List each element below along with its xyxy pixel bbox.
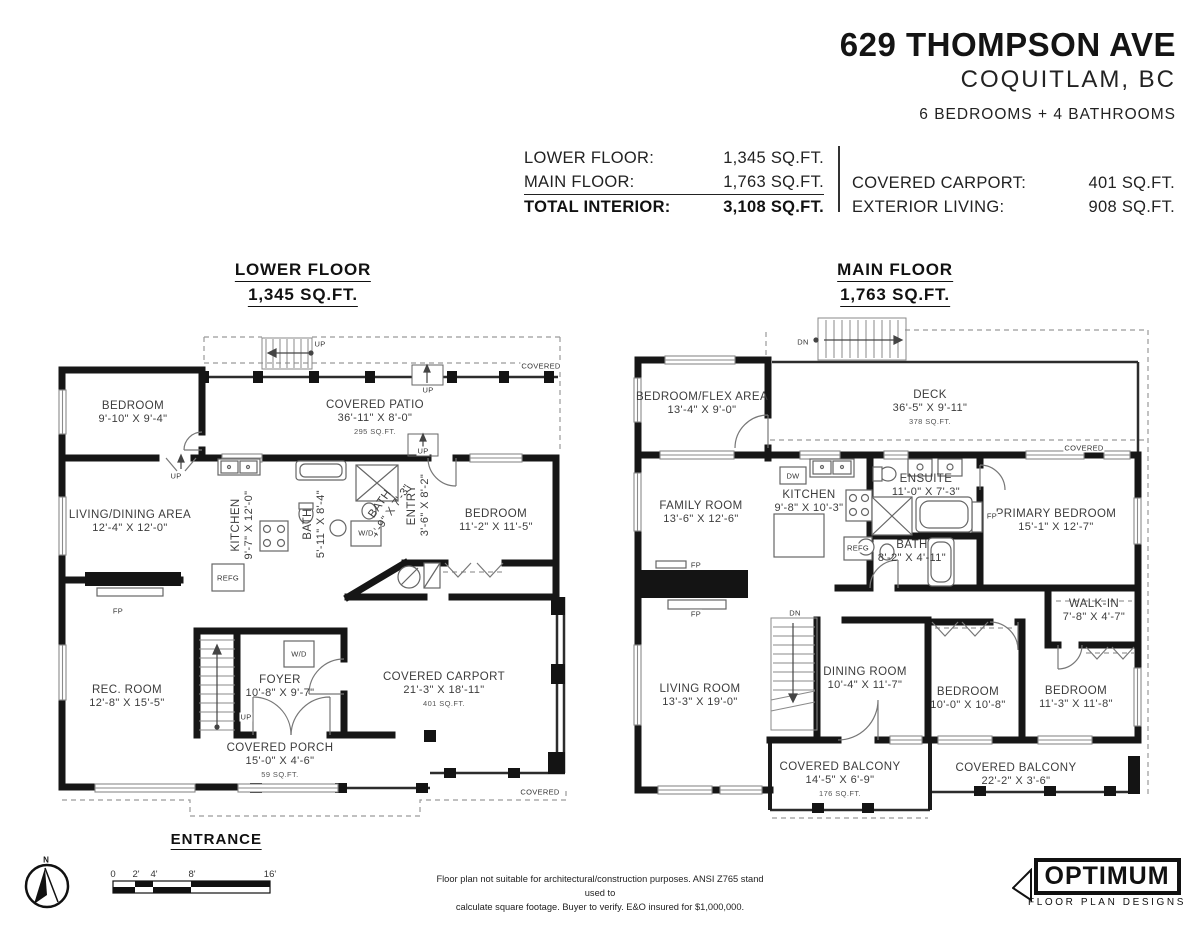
- room-label-primary-bedroom: PRIMARY BEDROOM 15'-1" X 12'-7": [996, 507, 1117, 535]
- room-label-lower-bath-1: BATH 5'-11" X 8'-4": [301, 490, 329, 558]
- area-row-carport: COVERED CARPORT: 401 SQ.FT.: [852, 171, 1175, 195]
- logo-name: OPTIMUM: [1045, 862, 1170, 890]
- dn-label: DN: [788, 609, 801, 618]
- entrance-block: ENTRANCE: [216, 831, 307, 850]
- room-label-deck: DECK 36'-5" X 9'-11" 378 SQ.FT.: [893, 388, 968, 427]
- room-dims: 9'-8" X 10'-3": [775, 502, 844, 516]
- room-dims: 12'-8" X 15'-5": [89, 697, 165, 711]
- room-area: 176 SQ.FT.: [779, 789, 900, 798]
- room-name: DINING ROOM: [823, 665, 907, 679]
- room-dims: 3'-6" X 8'-2": [419, 474, 433, 536]
- up-label: UP: [169, 472, 182, 481]
- room-name: COVERED BALCONY: [779, 760, 900, 774]
- room-area: 295 SQ.FT.: [326, 427, 424, 436]
- room-label-family-room: FAMILY ROOM 13'-6" X 12'-6": [659, 499, 742, 527]
- washer-dryer-label: W/D: [290, 650, 307, 659]
- room-label-covered-patio: COVERED PATIO 36'-11" X 8'-0" 295 SQ.FT.: [326, 398, 424, 437]
- room-name: LIVING/DINING AREA: [69, 508, 191, 522]
- scale-tick: 8': [188, 869, 195, 880]
- room-label-dining-room: DINING ROOM 10'-4" X 11'-7": [823, 665, 907, 693]
- dishwasher-label: DW: [785, 472, 800, 481]
- area-row-exterior: EXTERIOR LIVING: 908 SQ.FT.: [852, 195, 1175, 219]
- covered-label: COVERED: [519, 788, 560, 797]
- covered-label: COVERED: [1063, 444, 1104, 453]
- up-label: UP: [416, 447, 429, 456]
- room-label-main-bedroom-2: BEDROOM 11'-3" X 11'-8": [1039, 684, 1113, 712]
- lower-floor-sqft: 1,345 SQ.FT.: [248, 285, 358, 307]
- scale-bar: [112, 880, 272, 896]
- room-name: FOYER: [246, 673, 315, 687]
- fireplace-label: FP: [690, 561, 702, 570]
- room-name: WALK-IN: [1063, 597, 1125, 611]
- room-name: LIVING ROOM: [659, 682, 740, 696]
- area-value: 401 SQ.FT.: [1089, 174, 1175, 193]
- room-dims: 5'-11" X 8'-4": [315, 490, 329, 558]
- main-floor-sqft: 1,763 SQ.FT.: [840, 285, 950, 307]
- area-table-right: COVERED CARPORT: 401 SQ.FT. EXTERIOR LIV…: [852, 171, 1175, 219]
- room-dims: 8'-2" X 4'-11": [878, 552, 946, 566]
- room-name: ENTRY: [405, 474, 419, 536]
- logo-pennant-icon: [1012, 868, 1032, 904]
- room-dims: 10'-8" X 9'-7": [246, 687, 315, 701]
- room-dims: 13'-3" X 19'-0": [659, 696, 740, 710]
- room-name: BEDROOM/FLEX AREA: [636, 390, 768, 404]
- room-name: DECK: [893, 388, 968, 402]
- room-area: 378 SQ.FT.: [893, 417, 968, 426]
- scale-tick: 16': [264, 869, 276, 880]
- room-dims: 22'-2" X 3'-6": [955, 775, 1076, 789]
- room-name: KITCHEN: [229, 491, 243, 560]
- room-area: 401 SQ.FT.: [383, 699, 505, 708]
- disclaimer-line-2: calculate square footage. Buyer to verif…: [432, 900, 768, 914]
- area-value: 908 SQ.FT.: [1089, 198, 1175, 217]
- dn-label: DN: [796, 338, 809, 347]
- north-arrow-icon: [22, 860, 72, 910]
- room-name: COVERED PORCH: [227, 741, 334, 755]
- entrance-label: ENTRANCE: [171, 831, 262, 850]
- room-dims: 7'-8" X 4'-7": [1063, 611, 1125, 625]
- fireplace-label: FP: [986, 512, 998, 521]
- up-label: UP: [313, 340, 326, 349]
- room-dims: 36'-11" X 8'-0": [326, 412, 424, 426]
- property-city: COQUITLAM, BC: [840, 66, 1176, 94]
- room-area: 59 SQ.FT.: [227, 770, 334, 779]
- room-label-walk-in: WALK-IN 7'-8" X 4'-7": [1063, 597, 1125, 625]
- area-value: 1,345 SQ.FT.: [723, 149, 824, 168]
- room-label-main-kitchen: KITCHEN 9'-8" X 10'-3": [775, 488, 844, 516]
- room-label-main-bedroom-1: BEDROOM 10'-0" X 10'-8": [930, 685, 1006, 713]
- room-name: BATH: [301, 490, 315, 558]
- disclaimer: Floor plan not suitable for architectura…: [432, 872, 768, 914]
- area-row-total: TOTAL INTERIOR: 3,108 SQ.FT.: [524, 195, 824, 219]
- property-address: 629 THOMPSON AVE: [840, 26, 1176, 64]
- room-dims: 36'-5" X 9'-11": [893, 402, 968, 416]
- room-name: BEDROOM: [930, 685, 1006, 699]
- main-floor-title: MAIN FLOOR 1,763 SQ.FT.: [837, 260, 953, 307]
- area-value: 1,763 SQ.FT.: [723, 173, 824, 192]
- room-dims: 12'-4" X 12'-0": [69, 522, 191, 536]
- area-label: COVERED CARPORT:: [852, 174, 1026, 193]
- room-dims: 13'-4" X 9'-0": [636, 404, 768, 418]
- room-label-covered-balcony-2: COVERED BALCONY 22'-2" X 3'-6": [955, 761, 1076, 789]
- bedroom-bathroom-summary: 6 BEDROOMS + 4 BATHROOMS: [840, 106, 1176, 124]
- area-label: EXTERIOR LIVING:: [852, 198, 1004, 217]
- area-label: LOWER FLOOR:: [524, 149, 654, 168]
- table-divider: [838, 146, 840, 212]
- fireplace-label: FP: [112, 607, 124, 616]
- room-label-ensuite: ENSUITE 11'-0" X 7'-3": [892, 472, 960, 500]
- room-label-living-dining: LIVING/DINING AREA 12'-4" X 12'-0": [69, 508, 191, 536]
- lower-floor-title-text: LOWER FLOOR: [235, 260, 371, 282]
- room-dims: 14'-5" X 6'-9": [779, 774, 900, 788]
- room-label-lower-bedroom-1: BEDROOM 9'-10" X 9'-4": [99, 399, 168, 427]
- room-name: BEDROOM: [459, 507, 533, 521]
- area-table-left: LOWER FLOOR: 1,345 SQ.FT. MAIN FLOOR: 1,…: [524, 146, 824, 219]
- logo-tagline: FLOOR PLAN DESIGNS: [1028, 897, 1186, 908]
- room-dims: 9'-7" X 12'-0": [243, 491, 257, 560]
- room-dims: 10'-4" X 11'-7": [823, 679, 907, 693]
- room-dims: 10'-0" X 10'-8": [930, 699, 1006, 713]
- fireplace-label: FP: [690, 610, 702, 619]
- room-dims: 11'-0" X 7'-3": [892, 486, 960, 500]
- room-name: PRIMARY BEDROOM: [996, 507, 1117, 521]
- room-label-lower-bedroom-2: BEDROOM 11'-2" X 11'-5": [459, 507, 533, 535]
- header-block: 629 THOMPSON AVE COQUITLAM, BC 6 BEDROOM…: [840, 26, 1176, 124]
- room-name: COVERED CARPORT: [383, 670, 505, 684]
- room-dims: 11'-3" X 11'-8": [1039, 698, 1113, 712]
- area-label: TOTAL INTERIOR:: [524, 198, 671, 217]
- company-logo: OPTIMUM FLOOR PLAN DESIGNS: [1028, 858, 1186, 908]
- covered-label: COVERED: [520, 362, 561, 371]
- lower-floor-title: LOWER FLOOR 1,345 SQ.FT.: [235, 260, 371, 307]
- room-label-entry: ENTRY 3'-6" X 8'-2": [405, 474, 433, 536]
- washer-dryer-label: W/D: [357, 529, 374, 538]
- room-dims: 9'-10" X 9'-4": [99, 413, 168, 427]
- area-value: 3,108 SQ.FT.: [723, 198, 824, 217]
- area-row-main: MAIN FLOOR: 1,763 SQ.FT.: [524, 170, 824, 195]
- room-name: BEDROOM: [1039, 684, 1113, 698]
- room-label-living-room: LIVING ROOM 13'-3" X 19'-0": [659, 682, 740, 710]
- north-label: N: [43, 856, 49, 865]
- room-name: BEDROOM: [99, 399, 168, 413]
- up-label: UP: [421, 386, 434, 395]
- up-label: UP: [239, 713, 252, 722]
- disclaimer-line-1: Floor plan not suitable for architectura…: [432, 872, 768, 900]
- area-row-lower: LOWER FLOOR: 1,345 SQ.FT.: [524, 146, 824, 170]
- room-label-foyer: FOYER 10'-8" X 9'-7": [246, 673, 315, 701]
- room-label-covered-carport: COVERED CARPORT 21'-3" X 18'-11" 401 SQ.…: [383, 670, 505, 709]
- room-name: KITCHEN: [775, 488, 844, 502]
- room-dims: 15'-1" X 12'-7": [996, 521, 1117, 535]
- room-label-covered-porch: COVERED PORCH 15'-0" X 4'-6" 59 SQ.FT.: [227, 741, 334, 780]
- room-name: BATH: [878, 538, 946, 552]
- room-dims: 13'-6" X 12'-6": [659, 513, 742, 527]
- room-name: ENSUITE: [892, 472, 960, 486]
- room-label-flex-area: BEDROOM/FLEX AREA 13'-4" X 9'-0": [636, 390, 768, 418]
- room-label-covered-balcony-1: COVERED BALCONY 14'-5" X 6'-9" 176 SQ.FT…: [779, 760, 900, 799]
- fridge-label: REFG: [846, 544, 870, 553]
- scale-tick: 2': [132, 869, 139, 880]
- fridge-label: REFG: [216, 574, 240, 583]
- room-label-rec-room: REC. ROOM 12'-8" X 15'-5": [89, 683, 165, 711]
- scale-tick: 0: [110, 869, 115, 880]
- room-name: FAMILY ROOM: [659, 499, 742, 513]
- main-floor-title-text: MAIN FLOOR: [837, 260, 953, 282]
- room-label-main-bath: BATH 8'-2" X 4'-11": [878, 538, 946, 566]
- room-dims: 15'-0" X 4'-6": [227, 755, 334, 769]
- logo-box: OPTIMUM: [1034, 858, 1181, 895]
- room-label-lower-kitchen: KITCHEN 9'-7" X 12'-0": [229, 491, 257, 560]
- area-label: MAIN FLOOR:: [524, 173, 635, 192]
- room-name: COVERED PATIO: [326, 398, 424, 412]
- room-name: REC. ROOM: [89, 683, 165, 697]
- room-dims: 21'-3" X 18'-11": [383, 684, 505, 698]
- room-name: COVERED BALCONY: [955, 761, 1076, 775]
- room-dims: 11'-2" X 11'-5": [459, 521, 533, 535]
- scale-tick: 4': [150, 869, 157, 880]
